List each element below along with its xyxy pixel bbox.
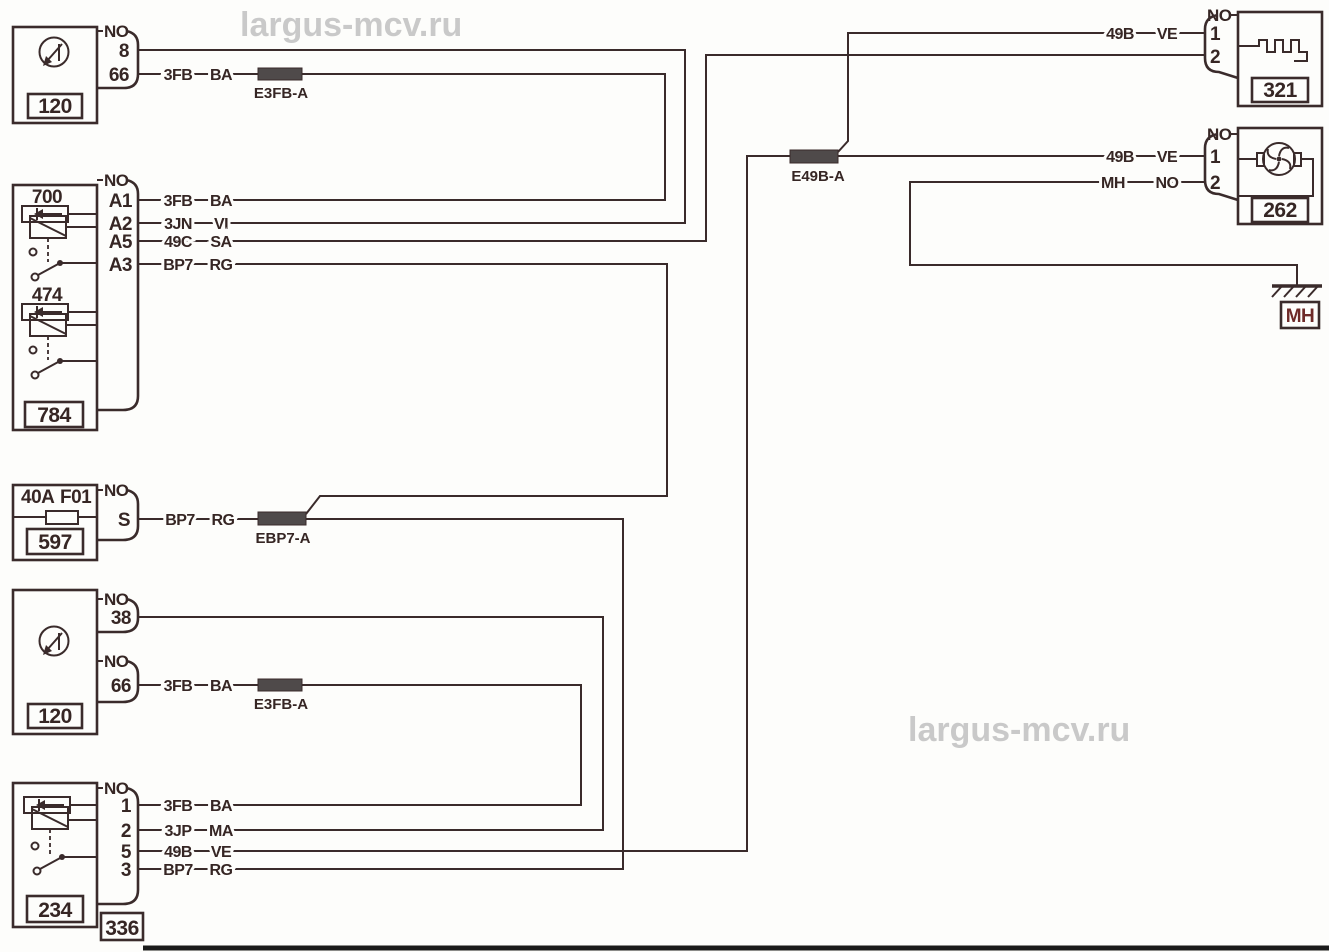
component-321-pulse-unit: 321 NO 1 2 — [1205, 6, 1322, 106]
wire-code: 49B — [1106, 26, 1134, 43]
component-id: 234 — [38, 899, 72, 922]
relay-234-icon — [24, 797, 97, 875]
wire-color: BA — [210, 798, 233, 815]
fan-icon — [1238, 143, 1313, 196]
pin-38: 38 — [111, 608, 131, 629]
wire-color: MA — [209, 823, 234, 840]
wire-e3fb-784a1 — [138, 74, 665, 200]
fuse-rating: 40A — [21, 487, 55, 508]
wire-code: 3FB — [164, 798, 193, 815]
component-id: 321 — [1263, 79, 1297, 102]
wire-color: VE — [1157, 26, 1178, 43]
splice-label-e3fb-top: E3FB-A — [254, 85, 308, 102]
watermark-top: largus-mcv.ru — [240, 6, 462, 44]
pin-2: 2 — [1210, 173, 1220, 194]
wire-color: VE — [1157, 149, 1178, 166]
relay-474-icon — [22, 304, 97, 379]
wire-321p1-e49b — [838, 33, 1205, 152]
wire-e3fb-234p1 — [138, 685, 581, 805]
relay-700-icon — [22, 206, 97, 281]
wire-color: RG — [210, 257, 233, 274]
pin-66: 66 — [111, 676, 131, 697]
splice-block-e3fb-top — [258, 68, 302, 80]
wire-color: BA — [210, 67, 233, 84]
wire-color: VI — [214, 216, 228, 233]
wire-color: NO — [1156, 175, 1179, 192]
component-120-top: 120 NO 8 66 — [13, 22, 138, 123]
splice-label-e3fb-bot: E3FB-A — [254, 696, 308, 713]
pin-2: 2 — [121, 821, 131, 842]
wire-color: SA — [210, 234, 232, 251]
wire-code: BP7 — [163, 862, 193, 879]
wire-code: BP7 — [163, 257, 193, 274]
connector-name: NO — [104, 171, 129, 190]
fuse-icon-body — [46, 511, 78, 524]
wire-color: RG — [212, 512, 235, 529]
wire-labels: 3FB BA 3FB BA 3JN VI 49C SA BP7 RG BP7 R… — [163, 26, 1178, 879]
wire-code: 49B — [164, 844, 192, 861]
connector-name: NO — [104, 481, 129, 500]
component-262-fan-motor: 262 NO 1 2 — [1205, 125, 1322, 224]
wire-code: 3FB — [164, 67, 193, 84]
wire-e49b-234p5 — [138, 156, 790, 851]
pin-2: 2 — [1210, 47, 1220, 68]
component-id: 120 — [38, 95, 72, 118]
pin-1: 1 — [1210, 24, 1221, 45]
wire-code: 3JP — [165, 823, 193, 840]
wiring-diagram-page: largus-mcv.ru largus-mcv.ru E3FB-A — [0, 0, 1329, 952]
component-784-relay-unit: 700 474 — [13, 171, 138, 430]
component-id: 784 — [37, 404, 71, 427]
pin-66: 66 — [109, 65, 129, 86]
wire-code: 3FB — [164, 193, 193, 210]
wire-code: 3FB — [164, 678, 193, 695]
component-id: 597 — [38, 531, 72, 554]
sub-id-474: 474 — [32, 285, 63, 306]
pin-s: S — [118, 510, 130, 531]
pin-8: 8 — [119, 41, 129, 62]
wire-code: 49B — [1106, 149, 1134, 166]
pin-1: 1 — [1210, 147, 1221, 168]
wire-code: BP7 — [165, 512, 195, 529]
component-234-relay: 234 NO 1 2 5 3 336 — [13, 779, 143, 940]
wire-code: MH — [1101, 175, 1125, 192]
wire-code: 49C — [164, 234, 193, 251]
wire-ebp7-784a3 — [138, 264, 667, 514]
wire-color: RG — [210, 862, 233, 879]
pin-3: 3 — [121, 860, 131, 881]
pin-a1: A1 — [109, 191, 133, 212]
splice-block-e3fb-bot — [258, 679, 302, 691]
component-597-fuse: 40A F01 597 NO S — [13, 481, 138, 560]
component-id: 120 — [38, 705, 72, 728]
connector-name: NO — [1207, 125, 1232, 144]
connector-name-2: NO — [104, 652, 129, 671]
connector-name-1: NO — [104, 590, 129, 609]
connector-name: NO — [104, 22, 129, 41]
splice-label-e49b: E49B-A — [791, 168, 845, 185]
splice-block-ebp7 — [258, 512, 306, 525]
wire-color: BA — [210, 193, 233, 210]
square-wave-icon — [1238, 40, 1307, 61]
connector-id: 336 — [105, 917, 139, 940]
wiring-diagram: largus-mcv.ru largus-mcv.ru E3FB-A — [0, 0, 1329, 952]
component-120-bottom: 120 NO 38 NO 66 — [13, 590, 138, 734]
component-id: 262 — [1263, 199, 1297, 222]
splice-block-e49b — [790, 150, 838, 163]
wire-color: VE — [211, 844, 232, 861]
wire-784a5-321p2 — [138, 55, 1205, 241]
wire-code: 3JN — [164, 216, 192, 233]
ground-symbol: MH — [1272, 286, 1322, 328]
fuse-name: F01 — [60, 487, 92, 508]
connector-name: NO — [1207, 6, 1232, 25]
wire-color: BA — [210, 678, 233, 695]
sub-id-700: 700 — [32, 187, 62, 208]
pin-bracket — [97, 788, 138, 904]
pin-1: 1 — [121, 796, 132, 817]
ground-label: MH — [1286, 306, 1315, 327]
wire-120bot38-234p2 — [138, 617, 603, 830]
pin-a5: A5 — [109, 232, 133, 253]
watermark-mid: largus-mcv.ru — [908, 711, 1130, 749]
splice-label-ebp7: EBP7-A — [255, 530, 310, 547]
pin-a3: A3 — [109, 255, 132, 276]
